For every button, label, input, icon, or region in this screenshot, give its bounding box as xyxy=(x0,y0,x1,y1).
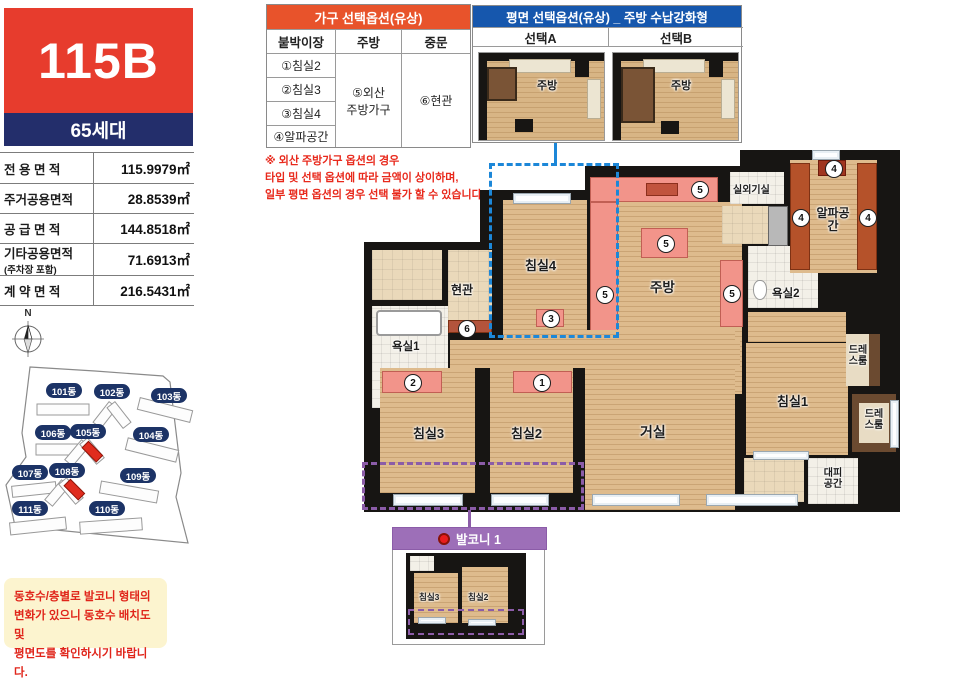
building-pill-108: 108동 xyxy=(49,463,85,478)
building-pill-111: 111동 xyxy=(12,501,48,516)
room-label-evacuation: 대피공간 xyxy=(821,468,845,490)
range-hood xyxy=(646,183,678,196)
balcony-panel: 발코니 1 침실3 침실2 xyxy=(392,527,545,645)
furniture-options-panel: 가구 선택옵션(유상) 붙박이장 주방 중문 ①침실2 ②침실3 ③침실4 ④알… xyxy=(266,4,471,148)
red-dot-icon xyxy=(438,533,450,545)
marker-4-alpha-right: 4 xyxy=(859,209,877,227)
option-item: ①침실2 xyxy=(267,53,335,77)
room-label-outdoor-unit: 실외기실 xyxy=(733,181,770,196)
building-pill-107: 107동 xyxy=(12,465,48,480)
area-row-note: (주차장 포함) xyxy=(4,262,90,276)
window xyxy=(592,494,680,506)
toilet xyxy=(753,280,767,300)
marker-5-island: 5 xyxy=(657,235,675,253)
balcony-mini-zone xyxy=(408,609,524,635)
balcony-panel-header: 발코니 1 xyxy=(392,527,547,550)
room-label-dress1: 드레스룸 xyxy=(846,345,870,367)
building-pill-104: 104동 xyxy=(133,427,169,442)
utility-area xyxy=(722,206,768,244)
window xyxy=(890,400,899,448)
building-pill-101: 101동 xyxy=(46,383,82,398)
furniture-options-title: 가구 선택옵션(유상) xyxy=(267,5,470,29)
blue-connector-line xyxy=(554,143,557,164)
plan-options-panel: 평면 선택옵션(유상) _ 주방 수납강화형 선택A 선택B 주방 주방 xyxy=(472,5,742,143)
col-header-builtin-closet: 붙박이장 xyxy=(267,29,335,53)
balcony-miniplan: 침실3 침실2 xyxy=(406,553,526,639)
option-item-kitchen-line2: 주방가구 xyxy=(346,101,390,118)
choice-b-header: 선택B xyxy=(608,27,743,47)
window xyxy=(706,494,798,506)
marker-1-bed2-closet: 1 xyxy=(533,374,551,392)
room-label-kitchen: 주방 xyxy=(650,276,675,296)
option-item: ④알파공간 xyxy=(267,125,335,147)
option-item-kitchen: ⑤외산 주방가구 xyxy=(335,53,401,147)
marker-4-alpha-top: 4 xyxy=(825,160,843,178)
room-label-entrance: 현관 xyxy=(451,281,473,298)
plan-options-title: 평면 선택옵션(유상) _ 주방 수납강화형 xyxy=(473,6,741,27)
balcony-room-bed2: 침실2 xyxy=(468,591,488,603)
bathtub xyxy=(376,310,442,336)
marker-4-alpha-left: 4 xyxy=(792,209,810,227)
area-row-label: 계 약 면 적 xyxy=(4,275,90,305)
room-label-bed2: 침실2 xyxy=(511,423,542,442)
option-item-kitchen-line1: ⑤외산 xyxy=(352,84,385,101)
notice-line: 동호수/층별로 발코니 형태의 xyxy=(14,588,159,607)
window xyxy=(753,451,809,460)
building-pill-102: 102동 xyxy=(94,384,130,399)
choice-b-miniplan: 주방 xyxy=(612,52,739,141)
area-row-value: 28.8539㎡ xyxy=(96,183,190,213)
room-label-dress2: 드레스룸 xyxy=(862,409,886,431)
households-count: 65세대 xyxy=(70,116,126,143)
choice-a-header: 선택A xyxy=(473,27,608,47)
room-label-bed1: 침실1 xyxy=(777,391,808,410)
unit-type-badge: 115B xyxy=(4,8,193,113)
marker-2-bed3-closet: 2 xyxy=(404,374,422,392)
miniplan-kitchen-label: 주방 xyxy=(671,77,691,93)
floorplan-brochure-page: { "unit": { "code": "115B", "households"… xyxy=(0,0,960,680)
households-badge: 65세대 xyxy=(4,113,193,146)
option-item: ③침실4 xyxy=(267,101,335,125)
option-item: ②침실3 xyxy=(267,77,335,101)
area-row-value: 71.6913㎡ xyxy=(96,243,190,275)
option-item-door: ⑥현관 xyxy=(401,53,470,147)
room-label-bed3: 침실3 xyxy=(413,423,444,442)
area-row-value: 216.5431㎡ xyxy=(96,275,190,305)
building-pill-103: 103동 xyxy=(151,388,187,403)
unit-type-code: 115B xyxy=(38,32,159,90)
room-living xyxy=(585,330,735,510)
area-row-label: 공 급 면 적 xyxy=(4,213,90,243)
room-label-alpha: 알파공간 xyxy=(813,207,853,234)
building-pill-106: 106동 xyxy=(35,425,71,440)
room-storage xyxy=(372,250,442,300)
area-table: 전 용 면 적 115.9979㎡ 주거공용면적 28.8539㎡ 공 급 면 … xyxy=(0,150,194,308)
kitchen-option-note: ※ 외산 주방가구 옵션의 경우 타입 및 선택 옵션에 따라 금액이 상이하며… xyxy=(265,153,485,204)
area-row-value: 115.9979㎡ xyxy=(96,153,190,183)
area-row-label: 주거공용면적 xyxy=(4,183,90,213)
kitchen-note-line: ※ 외산 주방가구 옵션의 경우 xyxy=(265,153,485,170)
balcony-room-bed3: 침실3 xyxy=(419,591,439,603)
compass-north-label: N xyxy=(6,308,50,319)
col-header-middle-door: 중문 xyxy=(401,29,470,53)
room-label-bath1: 욕실1 xyxy=(392,338,420,354)
hallway-bath2 xyxy=(748,312,846,342)
shaft xyxy=(768,206,788,246)
purple-connector-line xyxy=(468,510,471,528)
notice-line: 변화가 있으니 동호수 배치도 및 xyxy=(14,607,159,645)
room-label-living: 거실 xyxy=(640,422,666,442)
building-pill-109: 109동 xyxy=(120,468,156,483)
site-map: 101동 102동 103동 106동 105동 104동 107동 108동 … xyxy=(0,352,200,570)
marker-6-entrance-door: 6 xyxy=(458,320,476,338)
building-pill-105: 105동 xyxy=(70,424,106,439)
kitchen-note-line: 일부 평면 옵션의 경우 선택 불가 할 수 있습니다. xyxy=(265,187,485,204)
miniplan-kitchen-label: 주방 xyxy=(537,77,557,93)
balcony-zone xyxy=(362,462,584,510)
area-row-value: 144.8518㎡ xyxy=(96,213,190,243)
balcony-title: 발코니 1 xyxy=(456,529,501,548)
area-row-label: 전 용 면 적 xyxy=(4,153,90,183)
building-pill-110: 110동 xyxy=(89,501,125,516)
area-row-label: 기타공용면적 (주차장 포함) xyxy=(4,243,90,275)
kitchen-option-zone xyxy=(489,163,619,338)
notice-line: 평면도를 확인하시기 바랍니다. xyxy=(14,645,159,683)
marker-5-kitchen-top: 5 xyxy=(691,181,709,199)
choice-a-miniplan: 주방 xyxy=(478,52,605,141)
balcony-change-notice: 동호수/층별로 발코니 형태의 변화가 있으니 동호수 배치도 및 평면도를 확… xyxy=(4,578,167,648)
marker-5-pantry: 5 xyxy=(723,285,741,303)
col-header-kitchen: 주방 xyxy=(335,29,401,53)
room-label-bath2: 욕실2 xyxy=(772,285,800,301)
window xyxy=(812,150,840,160)
kitchen-note-line: 타입 및 선택 옵션에 따라 금액이 상이하며, xyxy=(265,170,485,187)
